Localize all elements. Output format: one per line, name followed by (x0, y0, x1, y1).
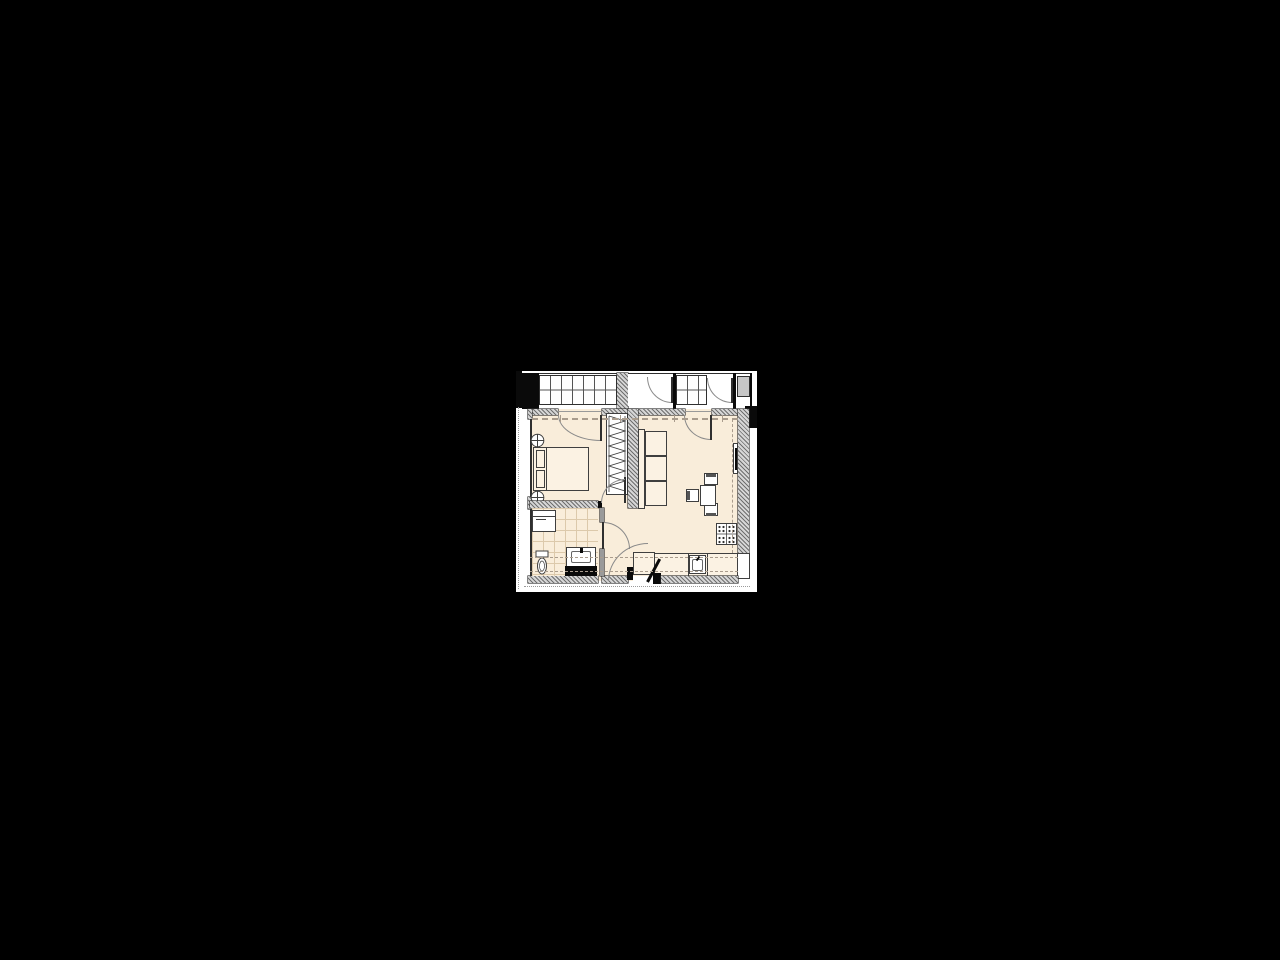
door-threshold (684, 411, 712, 412)
right-exterior-wall (738, 409, 749, 553)
exterior-wall (712, 409, 738, 415)
dining-chair (686, 489, 699, 502)
axis-tick (674, 415, 675, 422)
chair-backrest (706, 513, 716, 516)
pillow (536, 450, 545, 468)
dining-chair (704, 473, 718, 485)
duct-dashed-line (732, 419, 733, 553)
exterior-wall (528, 576, 598, 583)
sofa-backrest (638, 429, 645, 509)
axis-tick (620, 415, 621, 422)
exterior-wall (530, 409, 558, 415)
pillow (536, 470, 545, 488)
washer-line (533, 516, 555, 517)
chair-backrest (687, 491, 690, 500)
balcony-pier (617, 373, 628, 409)
washing-machine (532, 510, 556, 532)
wall-tv (733, 443, 738, 474)
sofa-cushion (645, 431, 667, 456)
bed-headboard-line (546, 448, 547, 490)
door-threshold (558, 411, 602, 412)
black-canvas (0, 0, 1280, 960)
bathroom-door-leaf (602, 522, 604, 549)
wall-pilaster (737, 553, 750, 579)
double-bed (533, 447, 589, 491)
bedroom-bathroom-wall (530, 501, 598, 508)
solid-wall-pier (522, 373, 539, 409)
axis-tick (722, 415, 723, 422)
floor-plan-sheet (516, 371, 757, 592)
entry-jamb (653, 573, 661, 584)
balcony-cabinet (737, 376, 750, 397)
dining-table (700, 485, 716, 506)
margin-axis-line (518, 407, 519, 589)
cooktop-burners (716, 523, 737, 545)
bedside-stool-icon (530, 433, 545, 448)
washer-line (536, 519, 546, 520)
chair-backrest (706, 474, 716, 477)
balcony-mullion (733, 373, 736, 409)
tv-screen-line (735, 448, 737, 470)
sofa-cushion (645, 481, 667, 506)
margin-axis-line (524, 586, 750, 587)
exterior-wall (661, 576, 738, 583)
sofa-cushion (645, 456, 667, 481)
bathroom-wall (600, 508, 604, 522)
lintel-dashed-line (530, 557, 738, 558)
balcony-glazing-grid (676, 375, 707, 405)
axis-dashed-line (532, 418, 738, 420)
lintel-dashed-line (530, 571, 738, 572)
toilet (535, 550, 551, 576)
faucet-icon (580, 548, 583, 553)
balcony-end-frame (750, 373, 752, 409)
axis-tick (560, 415, 561, 422)
bedroom-partition-wall (628, 409, 638, 508)
balcony-glazing-grid (539, 375, 617, 405)
balcony-door-arc (707, 378, 732, 403)
